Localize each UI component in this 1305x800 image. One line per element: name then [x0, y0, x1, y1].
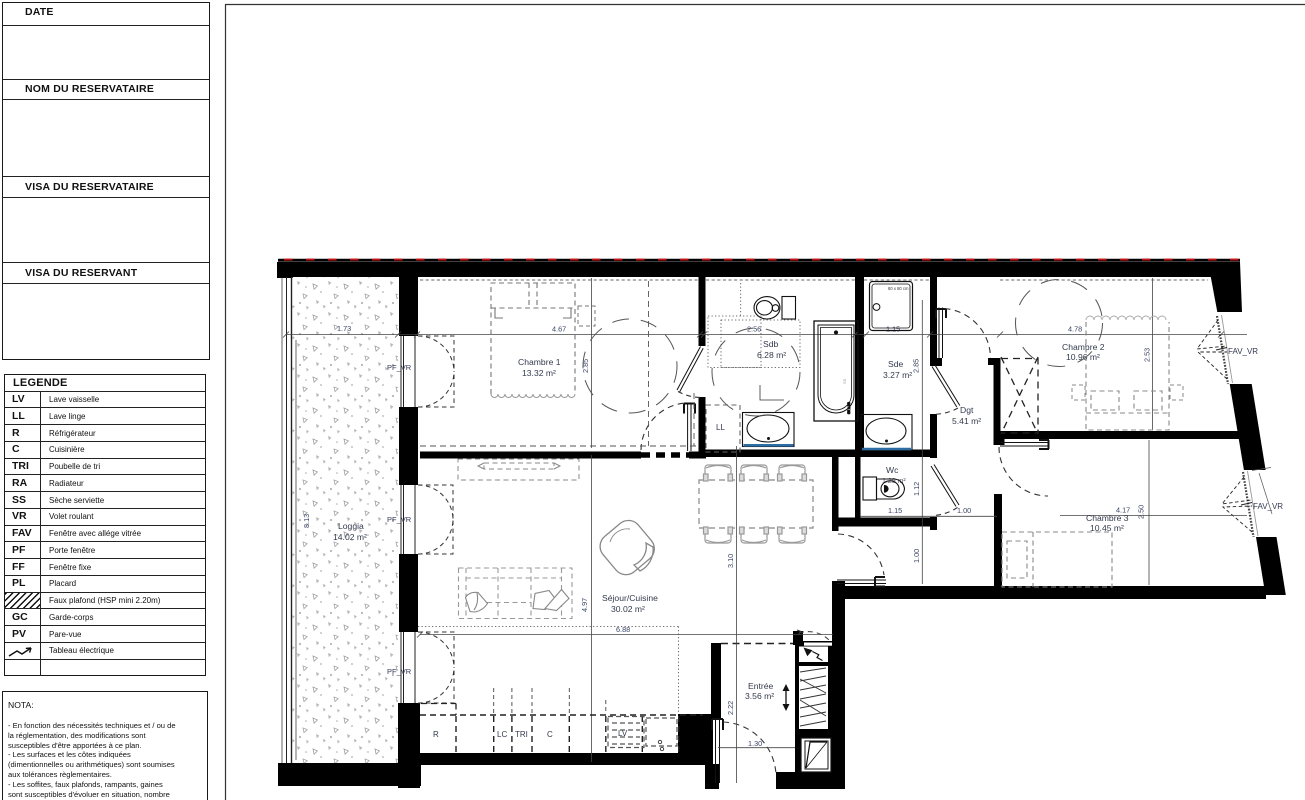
svg-text:PF_VR: PF_VR — [387, 363, 412, 372]
svg-text:LC: LC — [497, 730, 507, 739]
svg-text:2.85: 2.85 — [581, 359, 590, 373]
svg-text:R: R — [433, 730, 439, 739]
svg-text:1.73: 1.73 — [337, 324, 351, 333]
svg-text:1.12: 1.12 — [912, 482, 921, 496]
svg-text:10.96 m²: 10.96 m² — [1066, 352, 1100, 362]
svg-text:TRI: TRI — [515, 730, 528, 739]
svg-text:Séjour/Cuisine: Séjour/Cuisine — [602, 593, 658, 603]
svg-text:4.97: 4.97 — [580, 598, 589, 612]
svg-text:4.78: 4.78 — [1068, 325, 1082, 334]
svg-text:Wc: Wc — [886, 465, 899, 475]
svg-text:2.50: 2.50 — [1137, 505, 1146, 519]
svg-text:3.27 m²: 3.27 m² — [883, 370, 912, 380]
svg-text:Dgt: Dgt — [960, 405, 974, 415]
svg-text:SS: SS — [842, 378, 847, 384]
svg-text:5.41 m²: 5.41 m² — [952, 416, 981, 426]
svg-text:1.15: 1.15 — [888, 506, 902, 515]
svg-text:C: C — [547, 730, 553, 739]
svg-text:Sde: Sde — [888, 359, 904, 369]
svg-text:1.00: 1.00 — [912, 549, 921, 563]
svg-text:Chambre 1: Chambre 1 — [518, 357, 561, 367]
svg-text:2.85: 2.85 — [912, 359, 921, 373]
svg-text:4.67: 4.67 — [552, 325, 566, 334]
svg-text:2.22: 2.22 — [726, 701, 735, 715]
svg-text:3.56 m²: 3.56 m² — [745, 691, 774, 701]
svg-text:LL: LL — [716, 423, 725, 432]
svg-text:Chambre 2: Chambre 2 — [1062, 342, 1105, 352]
svg-text:Sdb: Sdb — [763, 339, 779, 349]
svg-text:3.10: 3.10 — [726, 554, 735, 568]
svg-text:1.30: 1.30 — [748, 739, 762, 748]
svg-text:PF_VR: PF_VR — [387, 515, 412, 524]
svg-text:30.02 m²: 30.02 m² — [611, 604, 645, 614]
svg-text:Loggia: Loggia — [338, 521, 364, 531]
svg-text:60 x 60: 60 x 60 — [847, 402, 851, 414]
svg-text:FAV_VR: FAV_VR — [1228, 347, 1258, 356]
svg-text:Entrée: Entrée — [748, 681, 774, 691]
svg-text:PF_VR: PF_VR — [387, 667, 412, 676]
svg-text:80 x 80 cm: 80 x 80 cm — [888, 286, 909, 291]
svg-text:Chambre 3: Chambre 3 — [1086, 513, 1129, 523]
svg-text:14.02 m²: 14.02 m² — [333, 532, 367, 542]
svg-text:13.32 m²: 13.32 m² — [522, 368, 556, 378]
svg-text:1.15: 1.15 — [886, 325, 900, 334]
svg-text:8.13: 8.13 — [302, 514, 311, 528]
svg-text:2.53: 2.53 — [1143, 348, 1152, 362]
svg-text:FAV_VR: FAV_VR — [1253, 502, 1283, 511]
svg-text:1.00: 1.00 — [957, 506, 971, 515]
